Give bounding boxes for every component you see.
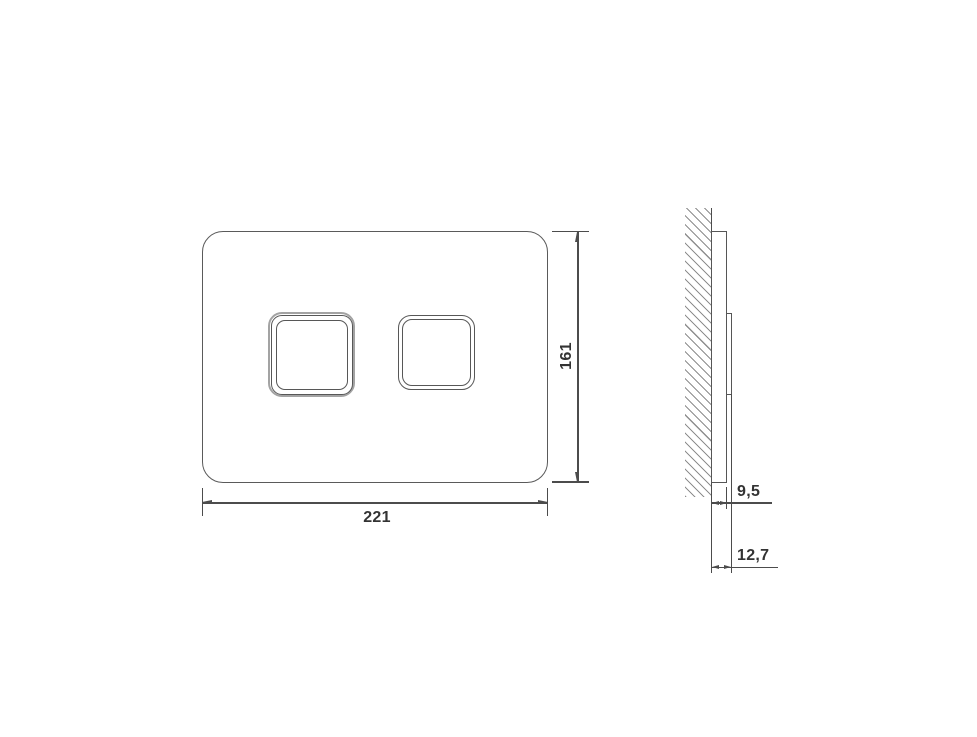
plate-depth-arrow-left [712,501,719,505]
plate-front-extension-line [726,487,727,509]
total-depth-label: 12,7 [737,547,769,565]
width-dim-line [202,502,548,503]
total-depth-arrow-right [724,565,731,569]
total-depth-arrow-left [712,565,719,569]
total-depth-dim-line [711,567,778,568]
height-dim-line [577,232,578,482]
button-front-extension-line [731,394,732,573]
width-dim-arrow-left [202,500,212,504]
plate-depth-arrow-right [720,501,727,505]
height-dim-extension-top [552,231,589,232]
flush-plate-side-profile [711,231,727,483]
left-button-face [276,320,348,390]
wall-hatch-pattern [685,208,711,497]
right-button-face [402,319,471,386]
left-flush-button [268,312,355,397]
plate-depth-label: 9,5 [737,483,760,501]
right-flush-button [398,315,475,390]
width-dim-arrow-right [538,500,548,504]
height-dim-arrow-top [575,232,579,242]
height-dim-arrow-bottom [575,472,579,482]
button-side-profile [726,313,732,395]
width-dim-label: 221 [347,509,407,527]
technical-drawing-canvas: 161 221 9,5 [0,0,977,737]
flush-plate-front-outline [202,231,548,483]
height-dim-label: 161 [558,334,576,378]
height-dim-extension-bottom [552,481,589,482]
